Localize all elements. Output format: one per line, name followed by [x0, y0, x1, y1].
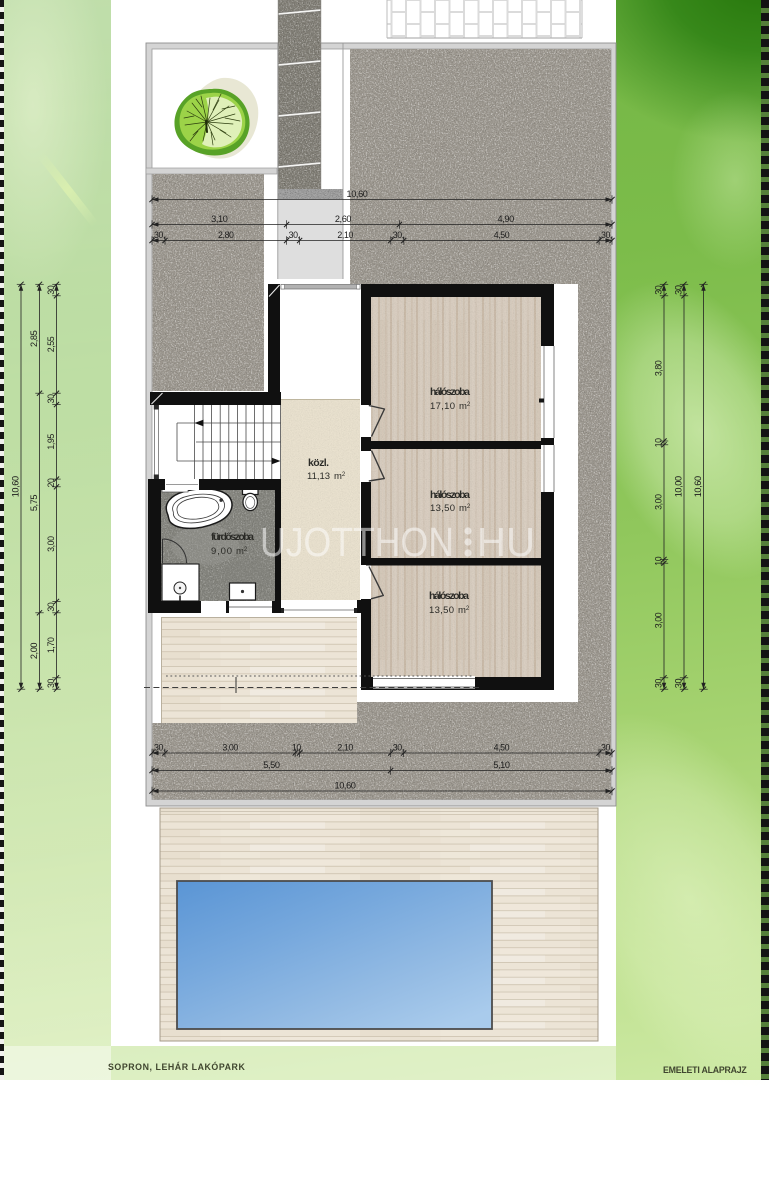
svg-text:2,10: 2,10: [337, 230, 353, 240]
svg-text:,30,: ,30,: [152, 743, 165, 753]
svg-text:2,55: 2,55: [46, 336, 56, 352]
svg-text:10,: 10,: [292, 743, 303, 753]
svg-text:2,10: 2,10: [337, 743, 353, 753]
svg-text:30: 30: [654, 285, 664, 294]
svg-text:,30,: ,30,: [391, 230, 404, 240]
svg-text:30: 30: [674, 679, 684, 689]
svg-text:17,10: 17,10: [430, 401, 455, 412]
svg-text:30: 30: [46, 394, 56, 403]
svg-text:hálószoba: hálószoba: [429, 590, 469, 602]
svg-text:13,50: 13,50: [430, 503, 455, 514]
svg-text:,30,: ,30,: [599, 230, 612, 240]
svg-text:10,60: 10,60: [11, 476, 21, 497]
svg-text:1,95: 1,95: [46, 434, 56, 450]
svg-text:3,00: 3,00: [46, 536, 56, 552]
svg-text:5,75: 5,75: [29, 495, 39, 512]
svg-text:hálószoba: hálószoba: [430, 489, 470, 501]
svg-text:5,50: 5,50: [263, 760, 280, 770]
svg-text:9,00: 9,00: [211, 546, 232, 557]
svg-text:13,50: 13,50: [429, 605, 454, 616]
svg-text:4,90: 4,90: [498, 214, 515, 224]
svg-text:2,60: 2,60: [335, 214, 352, 224]
svg-text:1,70: 1,70: [46, 637, 56, 653]
svg-text:3,00: 3,00: [654, 612, 664, 628]
svg-text:10: 10: [654, 556, 664, 565]
svg-text:közl.: közl.: [308, 457, 329, 469]
svg-text:4,50: 4,50: [494, 230, 510, 240]
svg-text:10,60: 10,60: [693, 476, 703, 497]
svg-text:hálószoba: hálószoba: [430, 386, 470, 398]
svg-text:3,00: 3,00: [222, 743, 238, 753]
svg-text:11,13: 11,13: [307, 471, 330, 482]
svg-text:2,85: 2,85: [29, 330, 39, 347]
svg-text:4,50: 4,50: [494, 743, 510, 753]
svg-text:fürdőszoba: fürdőszoba: [211, 531, 254, 543]
svg-text:10,60: 10,60: [335, 781, 356, 791]
svg-text:10,00: 10,00: [674, 476, 684, 497]
svg-text:2,80: 2,80: [218, 230, 234, 240]
svg-text:,30,: ,30,: [391, 743, 404, 753]
svg-text:5,10: 5,10: [493, 760, 510, 770]
svg-text:2,00: 2,00: [29, 643, 39, 660]
svg-text:3,00: 3,00: [654, 494, 664, 510]
svg-text:10: 10: [654, 438, 664, 447]
svg-text:30: 30: [46, 679, 56, 688]
svg-text:30: 30: [46, 285, 56, 294]
svg-text:UJOTTHON: UJOTTHON: [260, 519, 454, 565]
svg-text:30: 30: [46, 602, 56, 611]
svg-text:HU: HU: [477, 519, 535, 565]
svg-text:30: 30: [674, 285, 684, 295]
svg-text:20: 20: [46, 478, 56, 487]
svg-text:,30,: ,30,: [287, 230, 300, 240]
svg-text:3,10: 3,10: [211, 214, 228, 224]
svg-text:,30,: ,30,: [599, 743, 612, 753]
svg-text:10,60: 10,60: [347, 189, 368, 199]
svg-text:30: 30: [654, 679, 664, 688]
svg-text:EMELETI ALAPRAJZ: EMELETI ALAPRAJZ: [663, 1065, 747, 1075]
svg-text:SOPRON, LEHÁR LAKÓPARK: SOPRON, LEHÁR LAKÓPARK: [108, 1061, 245, 1072]
svg-text:,30,: ,30,: [152, 230, 165, 240]
svg-text:3,80: 3,80: [654, 360, 664, 376]
